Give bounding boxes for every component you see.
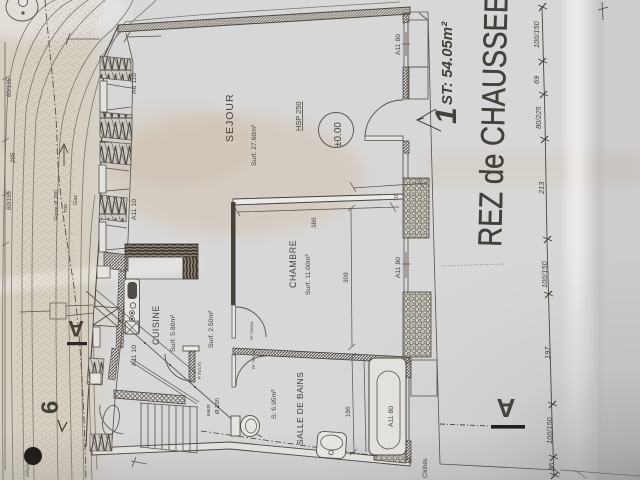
svg-text:A6 110: A6 110 xyxy=(131,73,138,94)
svg-text:REZ de CHAUSSEE: REZ de CHAUSSEE xyxy=(471,0,515,247)
svg-text:Fonte Ø 200: Fonte Ø 200 xyxy=(54,190,60,220)
svg-text:S: 6.95m²: S: 6.95m² xyxy=(271,389,278,419)
svg-text:35: 35 xyxy=(547,462,556,471)
svg-text:A: A xyxy=(496,393,515,423)
svg-text:Surf. 27.60m²: Surf. 27.60m² xyxy=(251,124,258,166)
svg-text:60/135: 60/135 xyxy=(6,78,13,97)
svg-text:SALLE DE BAINS: SALLE DE BAINS xyxy=(295,372,305,445)
svg-text:Surf. 2.50m²: Surf. 2.50m² xyxy=(208,310,215,348)
svg-text:Surf. 5.80m²: Surf. 5.80m² xyxy=(170,314,177,352)
svg-text:SEJOUR: SEJOUR xyxy=(224,93,236,142)
svg-text:100/150: 100/150 xyxy=(540,260,549,288)
svg-text:Gaz: Gaz xyxy=(73,195,79,205)
svg-text:10: 10 xyxy=(394,195,400,201)
svg-text:60/195: 60/195 xyxy=(6,191,13,210)
svg-text:A11 10: A11 10 xyxy=(131,199,138,220)
svg-text:Surf. 11.00m²: Surf. 11.00m² xyxy=(305,254,312,295)
svg-text:TOE: TOE xyxy=(63,204,68,213)
svg-text:6: 6 xyxy=(37,401,64,414)
svg-text:69: 69 xyxy=(532,76,541,84)
svg-text:A11 80: A11 80 xyxy=(395,257,402,278)
svg-text:±0.00: ±0.00 xyxy=(333,122,344,147)
svg-text:100/150: 100/150 xyxy=(532,20,541,48)
svg-text:CHAMBRE: CHAMBRE xyxy=(288,240,298,288)
svg-text:196: 196 xyxy=(345,406,352,417)
svg-text:213: 213 xyxy=(537,181,546,195)
svg-text:197: 197 xyxy=(543,346,552,359)
svg-text:PF 750/DA: PF 750/DA xyxy=(250,321,254,340)
svg-text:A11 10: A11 10 xyxy=(131,345,138,366)
svg-text:1: 1 xyxy=(430,107,463,124)
svg-text:ST: 54.05m²: ST: 54.05m² xyxy=(439,21,456,105)
svg-text:CUISINE: CUISINE xyxy=(151,305,161,345)
svg-text:309: 309 xyxy=(343,272,350,283)
svg-text:Clichés: Clichés xyxy=(423,458,429,478)
svg-text:A11 80: A11 80 xyxy=(395,34,402,55)
svg-text:80/225: 80/225 xyxy=(534,106,543,129)
svg-text:386: 386 xyxy=(311,217,318,228)
svg-text:eaux: eaux xyxy=(206,404,212,416)
svg-text:100/150: 100/150 xyxy=(545,416,554,444)
svg-text:PF 750/DA: PF 750/DA xyxy=(252,350,256,369)
svg-text:A: A xyxy=(68,316,84,341)
svg-text:Ø 100: Ø 100 xyxy=(215,398,221,414)
svg-text:dallage: dallage xyxy=(25,462,30,477)
svg-text:205: 205 xyxy=(10,152,17,164)
svg-text:HSP 250: HSP 250 xyxy=(294,102,303,131)
svg-text:A11 80: A11 80 xyxy=(388,406,395,427)
svg-text:P 75/170: P 75/170 xyxy=(197,362,202,379)
